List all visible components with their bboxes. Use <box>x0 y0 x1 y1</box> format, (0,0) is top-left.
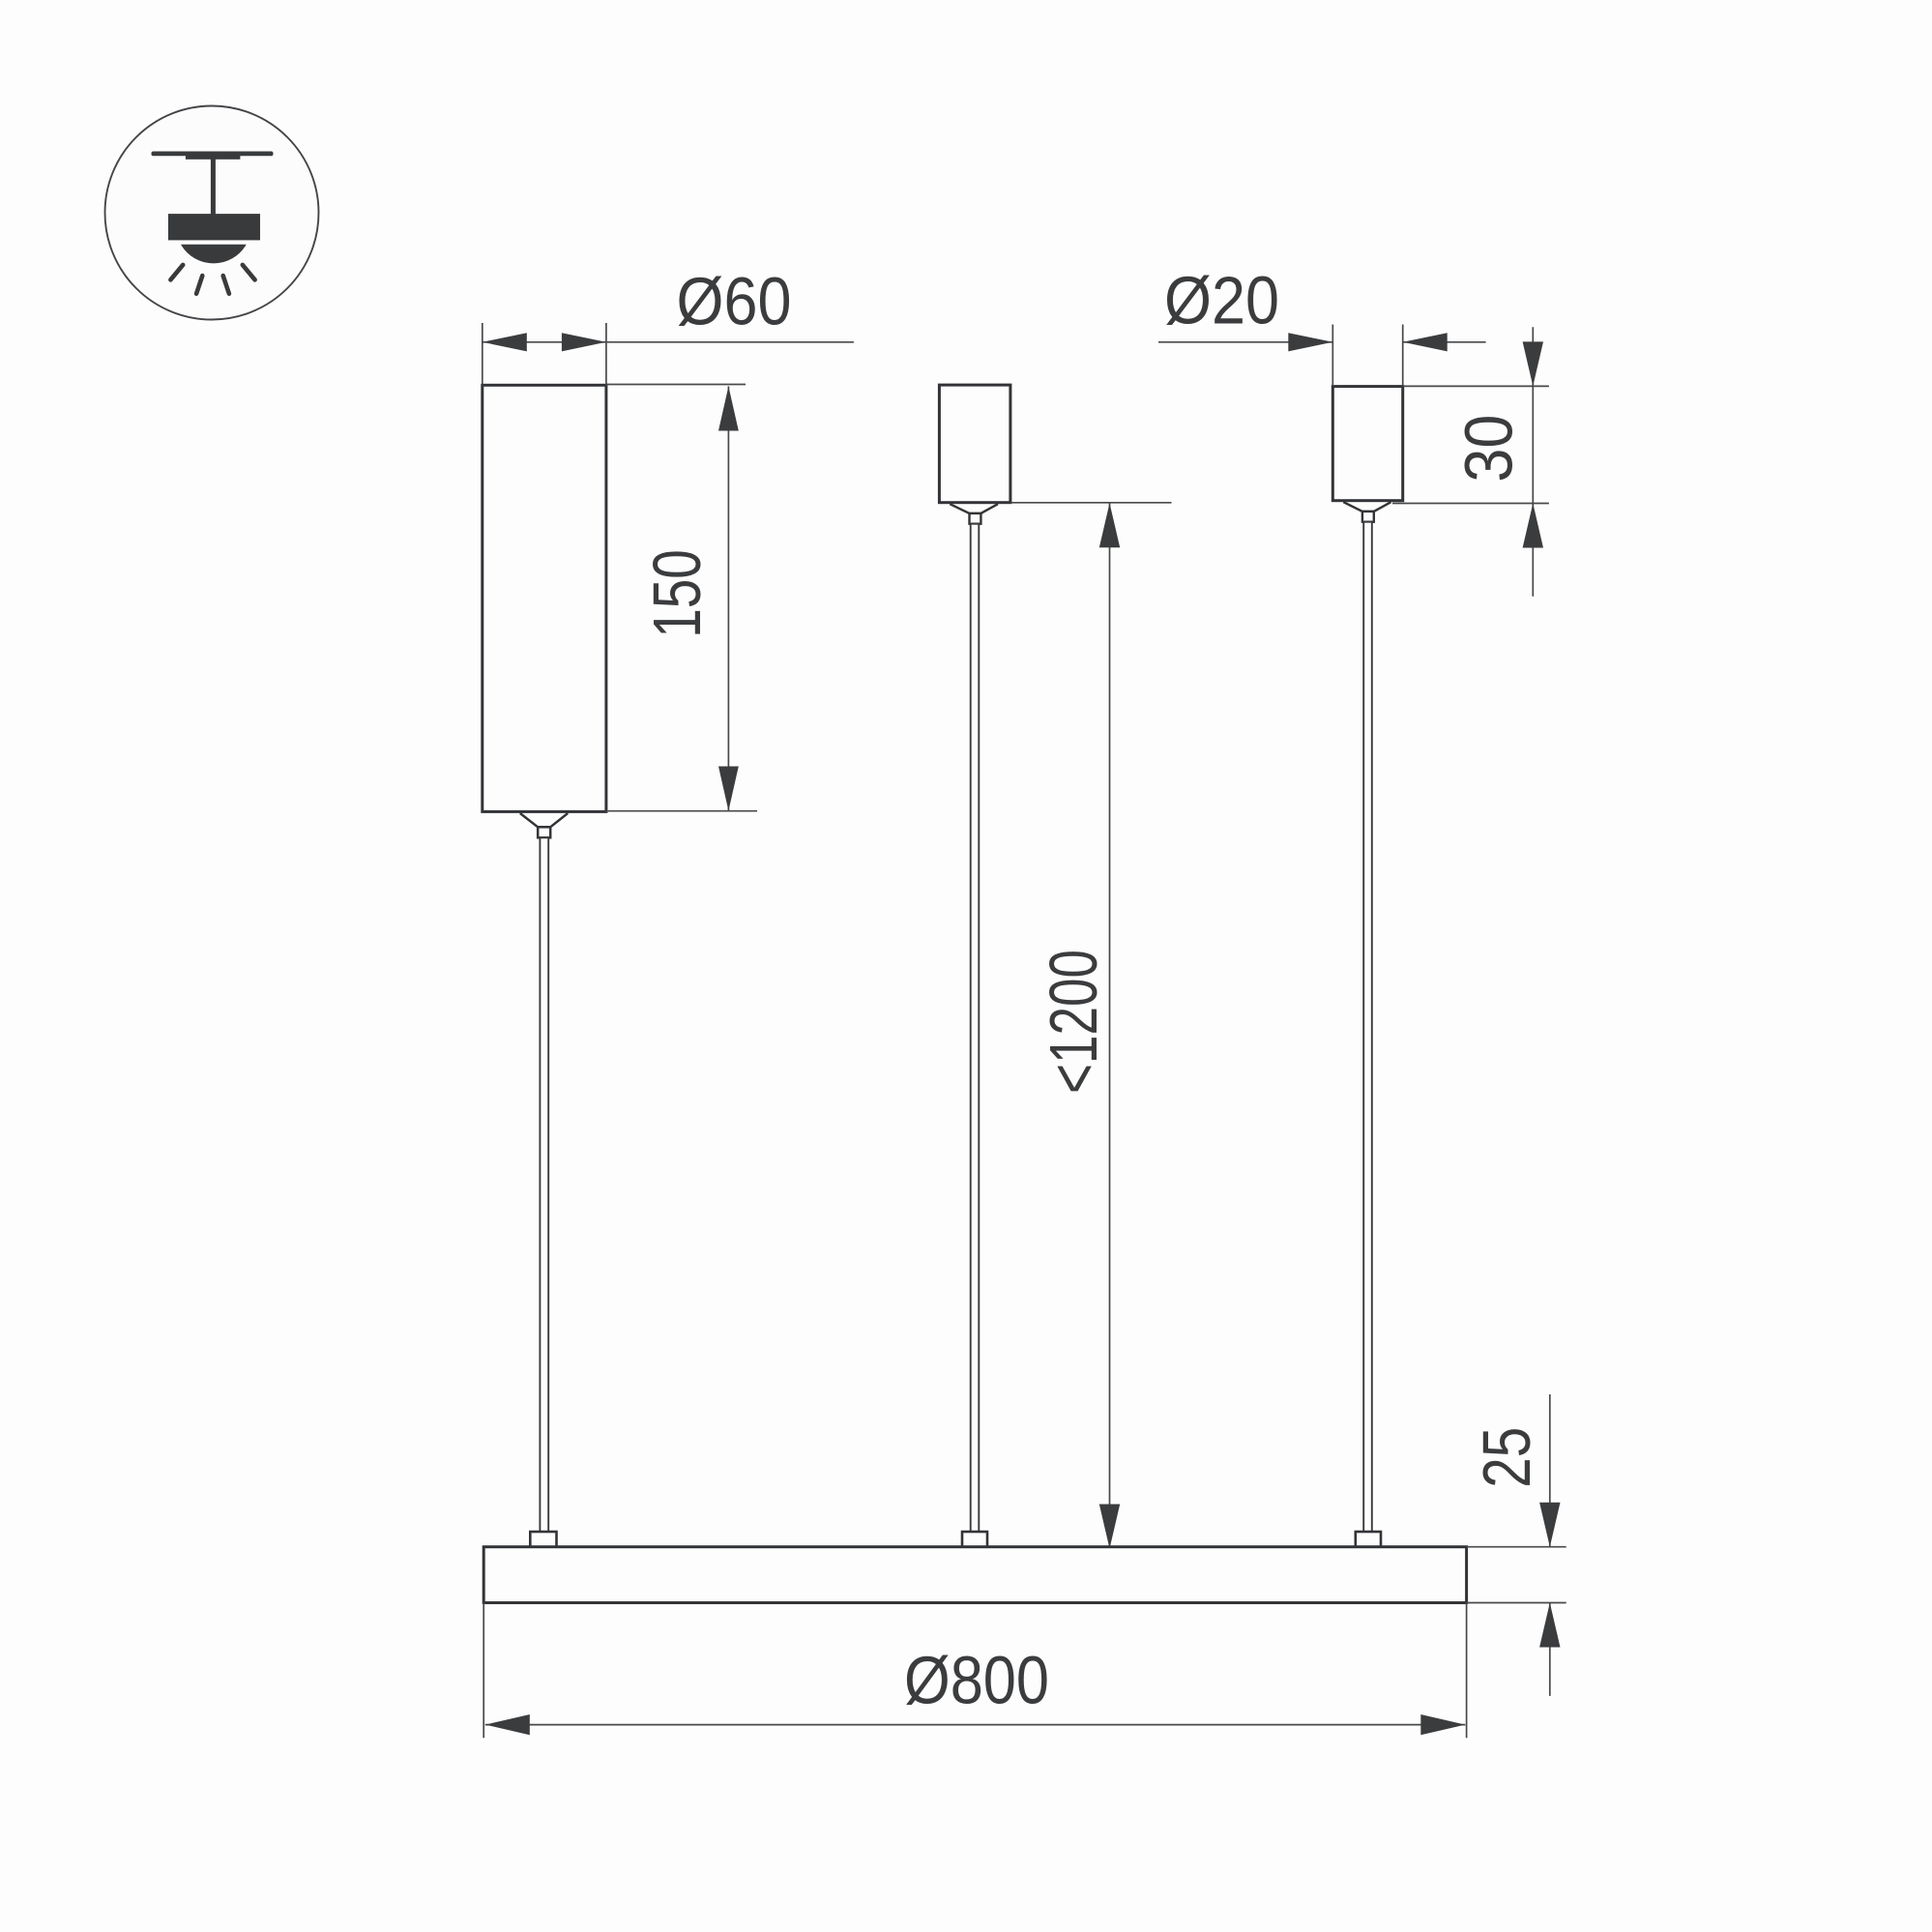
svg-text:Ø800: Ø800 <box>904 1642 1049 1717</box>
svg-text:<1200: <1200 <box>1036 950 1111 1094</box>
svg-text:150: 150 <box>639 549 715 638</box>
svg-text:30: 30 <box>1451 415 1527 483</box>
svg-text:Ø20: Ø20 <box>1164 263 1279 338</box>
svg-text:25: 25 <box>1469 1427 1544 1488</box>
svg-text:Ø60: Ø60 <box>677 264 792 339</box>
